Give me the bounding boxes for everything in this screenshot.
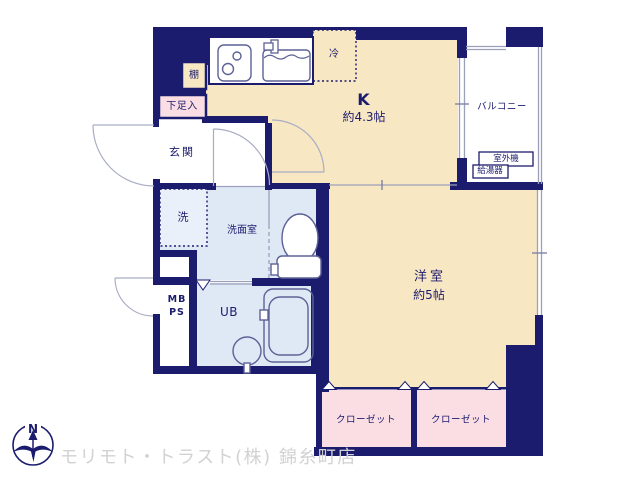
kitchen-size-label: 約4.3帖 bbox=[342, 111, 385, 123]
kitchen-label: K bbox=[357, 92, 370, 108]
western-room-floor bbox=[329, 185, 537, 388]
unit-bath-label: UB bbox=[220, 306, 238, 318]
unit-bath-door-line bbox=[210, 282, 252, 285]
closet-left-label: クローゼット bbox=[336, 415, 396, 425]
outdoor-unit-label: 室外機 bbox=[493, 155, 519, 164]
washroom-label: 洗面室 bbox=[227, 226, 257, 236]
western-room-size-label: 約5帖 bbox=[413, 289, 445, 301]
balcony-label: バルコニー bbox=[477, 102, 527, 112]
shelf-label: 棚 bbox=[189, 71, 199, 81]
meter-box-label: MB PS bbox=[168, 294, 187, 320]
front-door-arc bbox=[93, 125, 154, 186]
company-watermark: モリモト・トラスト(株) 錦糸町店 bbox=[60, 443, 357, 469]
western-room-label: 洋室 bbox=[414, 271, 446, 284]
floor-plan: N 棚 下足入 玄関 洗 洗面室 MB PS UB K 約4.3帖 冷 バルコニ… bbox=[0, 0, 640, 480]
kitchen-fixtures bbox=[209, 37, 313, 84]
closet-right-label: クローゼット bbox=[431, 415, 491, 425]
refrigerator-label: 冷 bbox=[329, 50, 339, 60]
shoe-storage-label: 下足入 bbox=[166, 102, 198, 112]
water-heater-label: 給湯器 bbox=[477, 167, 503, 176]
compass-north-label: N bbox=[28, 422, 38, 436]
compass-icon: N bbox=[13, 420, 53, 465]
entrance-label: 玄関 bbox=[169, 147, 195, 158]
room-floors bbox=[159, 37, 538, 448]
balcony-side-rail bbox=[539, 47, 542, 184]
meter-box-line2: PS bbox=[168, 307, 187, 320]
floor-plan-drawing: N bbox=[0, 0, 640, 480]
kitchen-window bbox=[460, 58, 465, 158]
meter-box-door-arc bbox=[115, 278, 153, 316]
meter-box-line1: MB bbox=[168, 294, 187, 307]
washing-machine-label: 洗 bbox=[178, 212, 189, 223]
unit-bath-floor bbox=[197, 283, 311, 366]
